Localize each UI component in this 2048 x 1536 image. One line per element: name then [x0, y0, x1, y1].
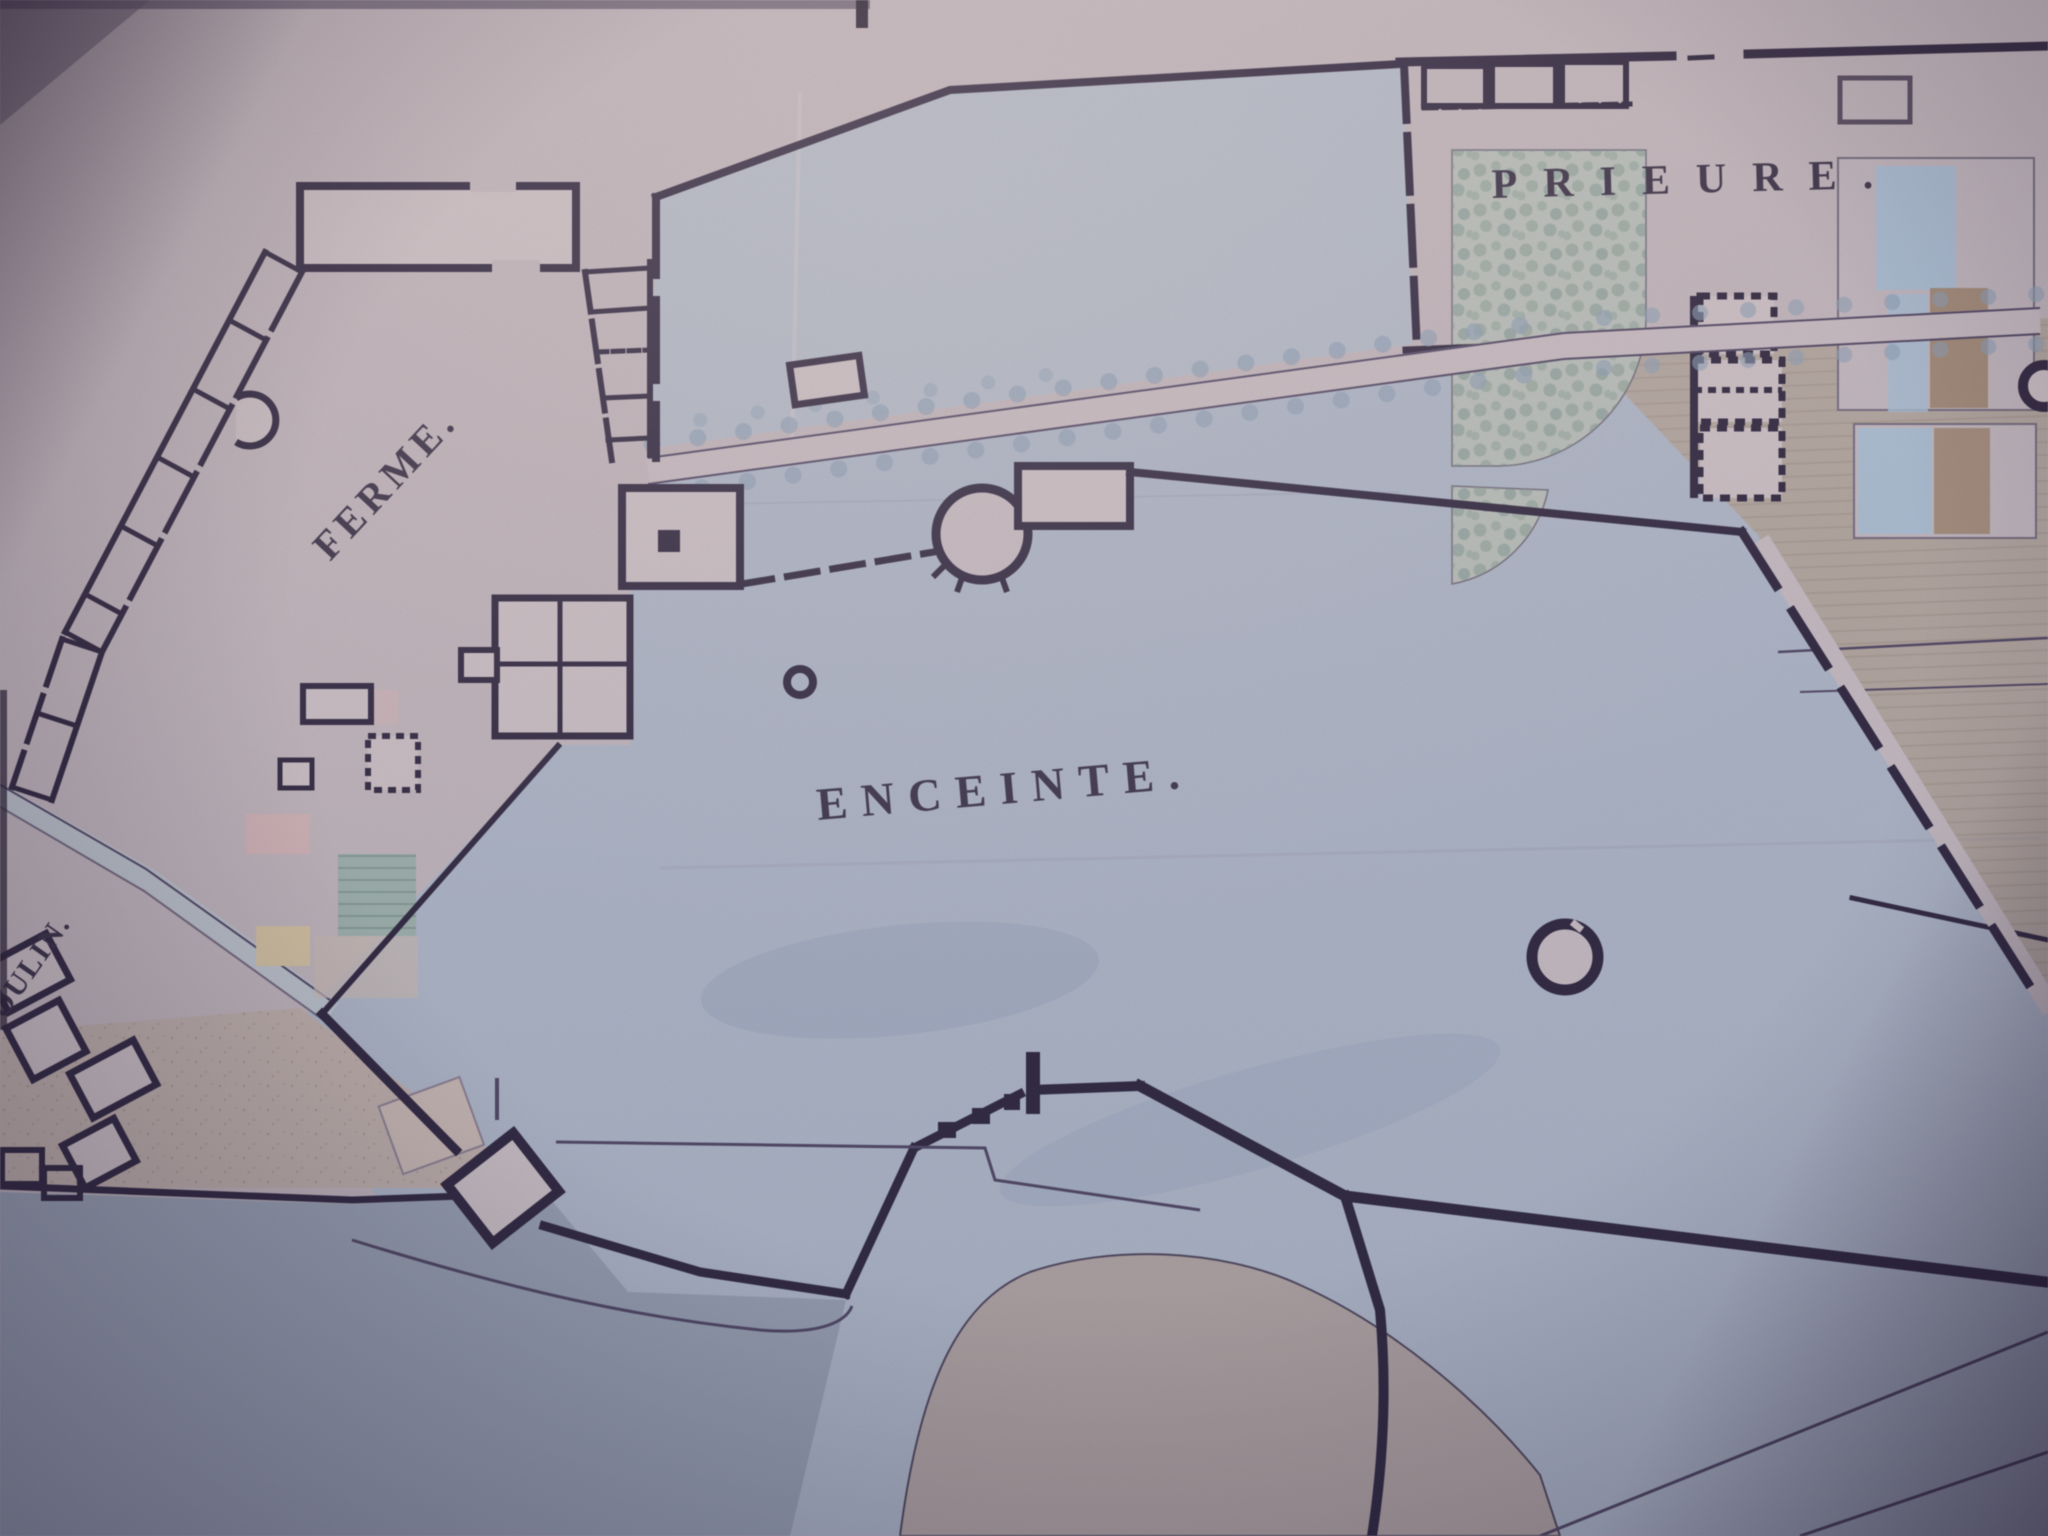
plan-photo: FERME. ENCEINTE. PRIEURE. OULIN.	[0, 0, 2048, 1536]
photo-artifacts	[0, 0, 2048, 1536]
grain-overlay	[0, 0, 2048, 1536]
